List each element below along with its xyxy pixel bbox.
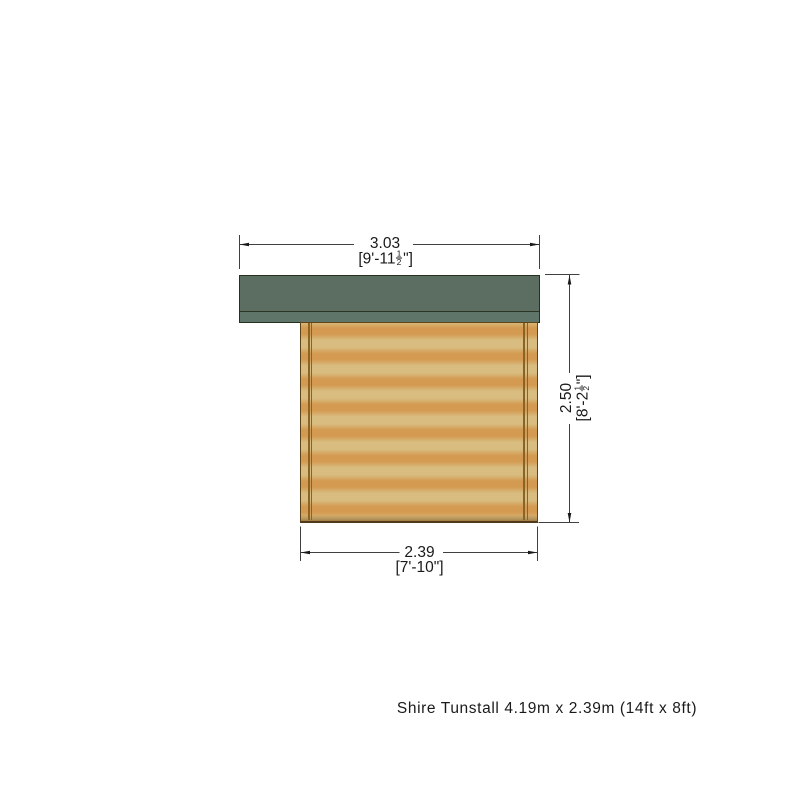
svg-text:[9'-11: [9'-11 <box>358 251 395 268</box>
svg-text:[8'-2: [8'-2 <box>575 392 592 422</box>
svg-text:[7'-10"]: [7'-10"] <box>395 559 443 576</box>
svg-text:"]: "] <box>575 374 592 384</box>
svg-text:3.03: 3.03 <box>370 235 400 252</box>
svg-text:2: 2 <box>397 257 402 267</box>
svg-text:"]: "] <box>403 251 413 268</box>
svg-text:2: 2 <box>581 386 591 391</box>
svg-text:Shire Tunstall 4.19m x 2.39m (: Shire Tunstall 4.19m x 2.39m (14ft x 8ft… <box>397 700 697 717</box>
